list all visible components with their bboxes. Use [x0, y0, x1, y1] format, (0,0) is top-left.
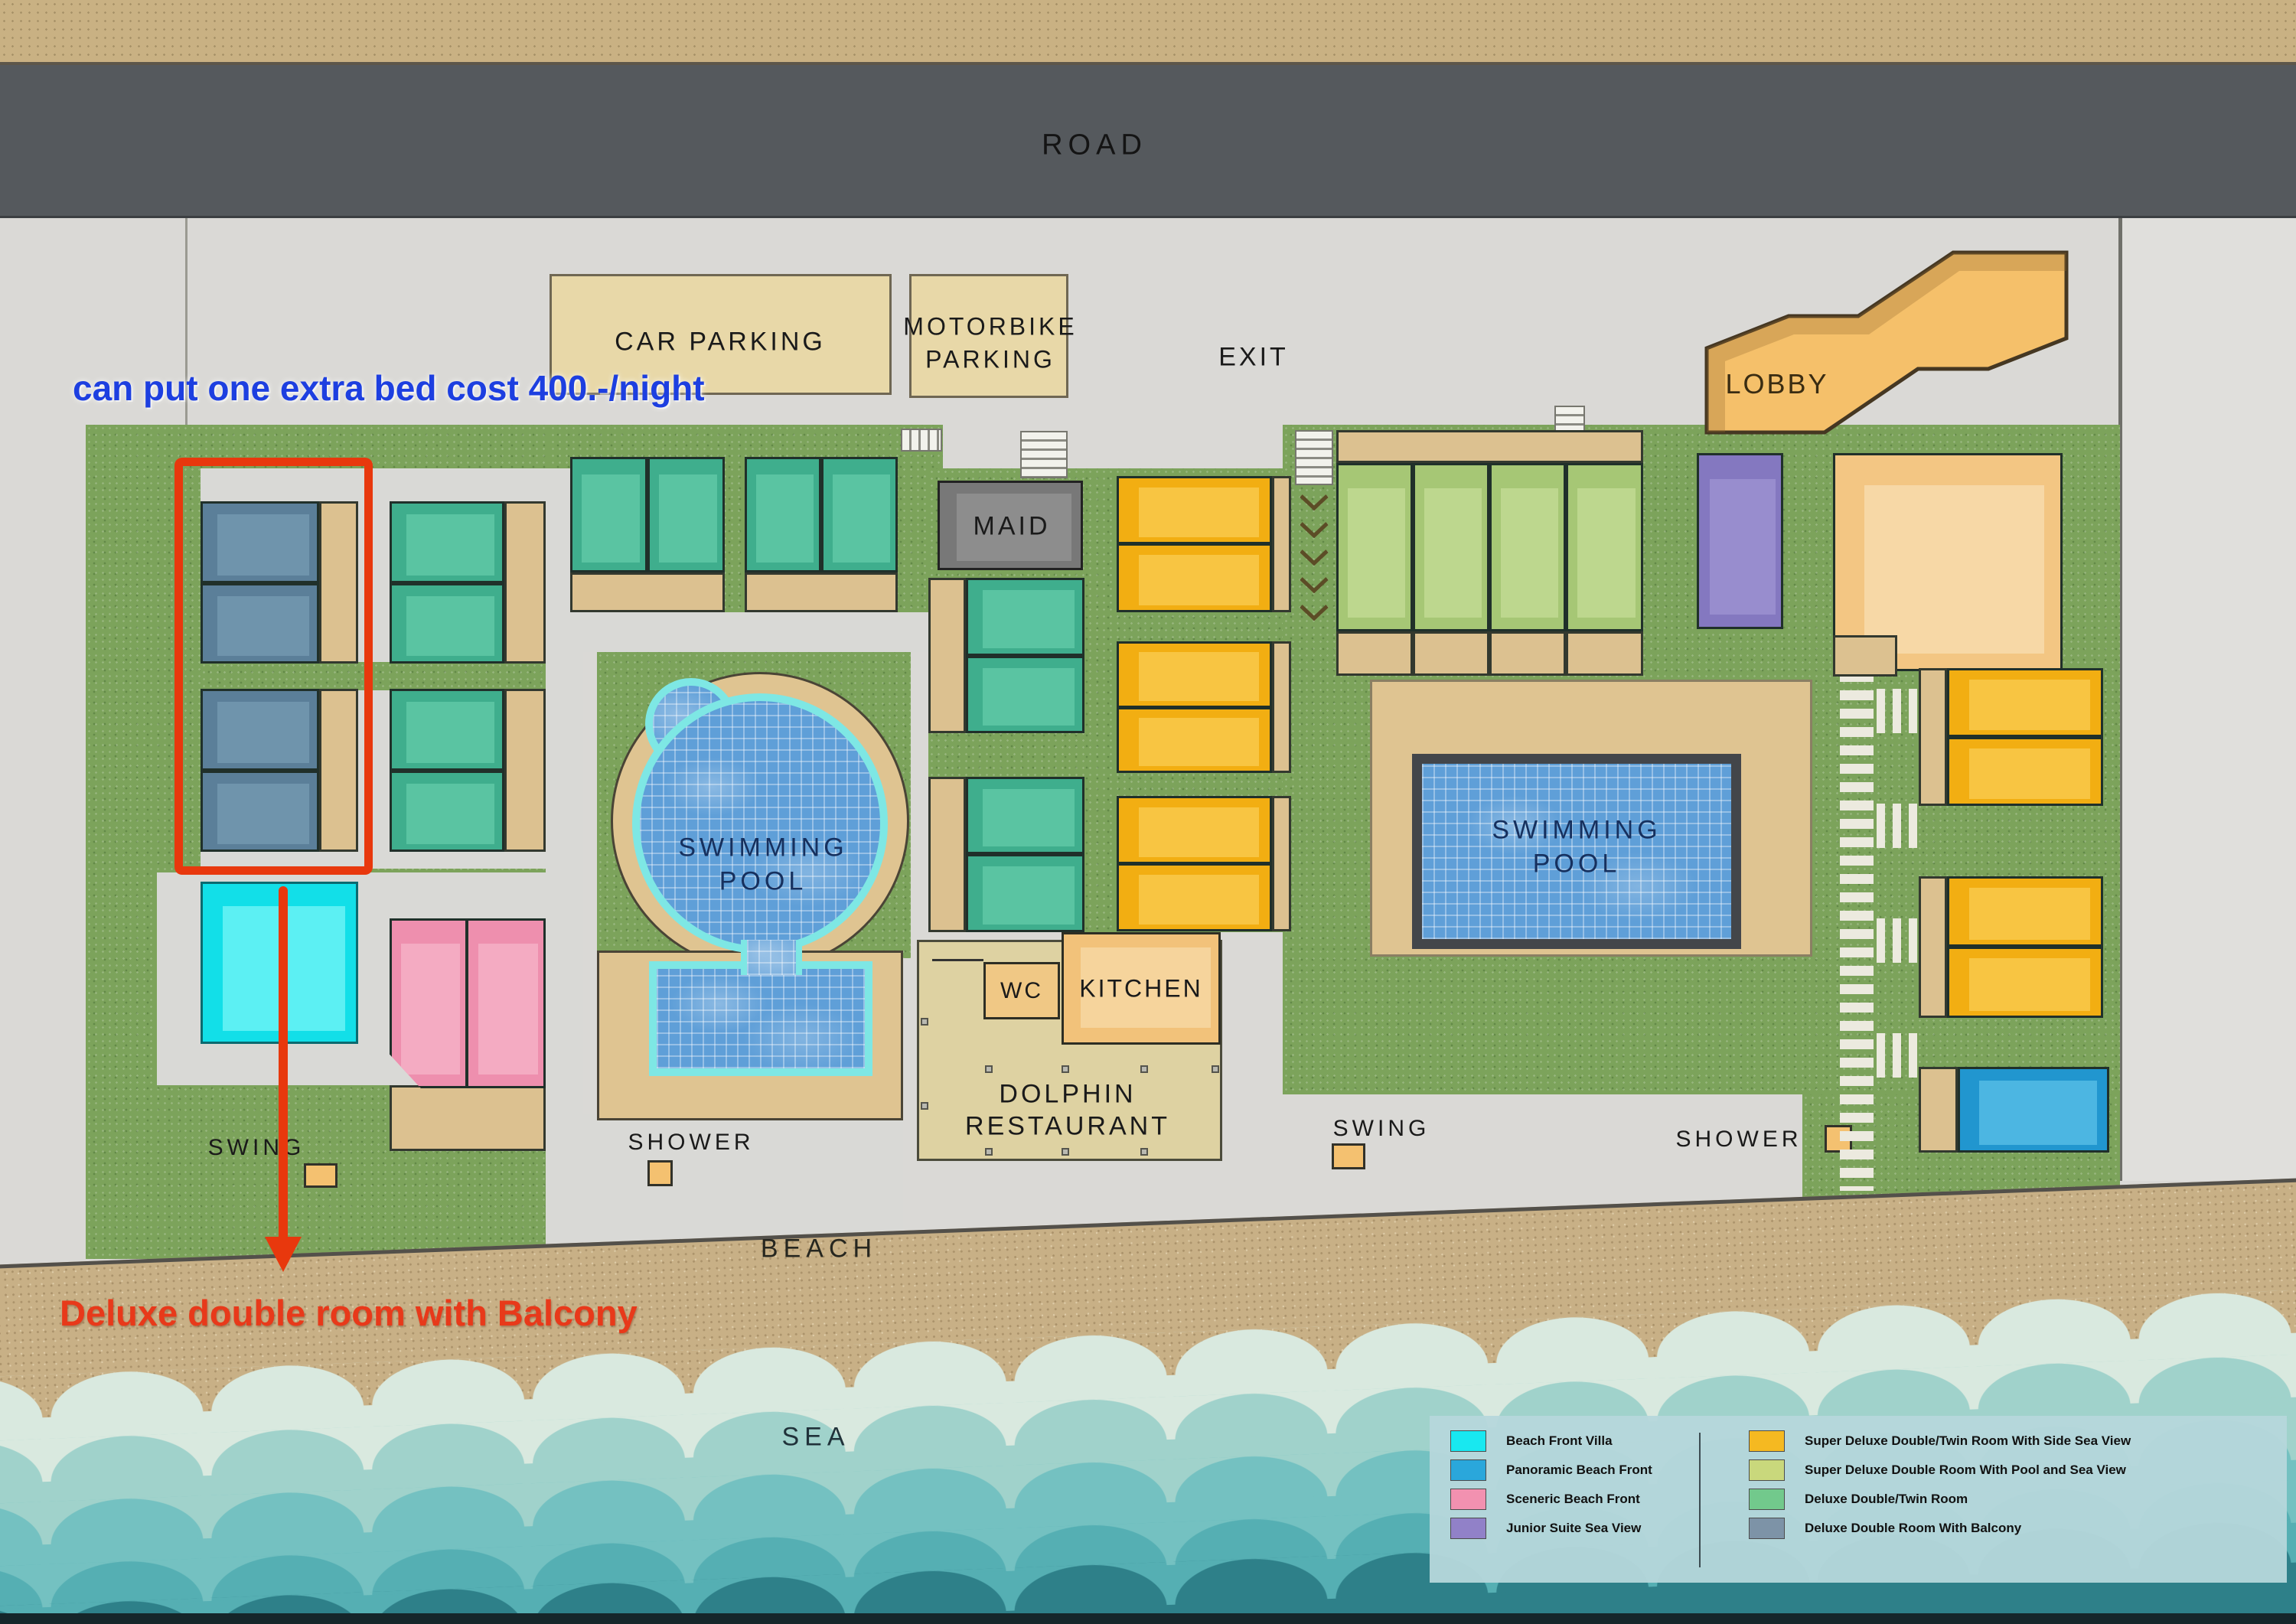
porch-top-center-1 [570, 572, 725, 612]
porch-twin-left-1 [504, 501, 546, 664]
restaurant-label-line1: DOLPHIN [999, 1080, 1136, 1110]
walkway-top-center [550, 612, 938, 652]
porch-right-orange-1 [1919, 668, 1947, 806]
restaurant-post [1140, 1065, 1148, 1073]
room-deluxe-twin [570, 457, 647, 572]
porch-right-building-bottom [1413, 631, 1489, 676]
room-super-deluxe-side-sea [1947, 876, 2103, 947]
shower-left-label: SHOWER [628, 1130, 755, 1156]
legend-label: Deluxe Double/Twin Room [1805, 1492, 1968, 1507]
porch-right-orange-2 [1919, 876, 1947, 1018]
room-super-deluxe-side-sea [1947, 947, 2103, 1018]
room-super-deluxe-side-sea [1117, 543, 1272, 612]
legend-label: Super Deluxe Double Room With Pool and S… [1805, 1463, 2126, 1478]
porch-twin-left-2 [504, 689, 546, 852]
pool-left-label-line2: POOL [719, 867, 807, 897]
road-label: ROAD [1042, 129, 1147, 162]
exit-label: EXIT [1218, 343, 1289, 373]
room-super-deluxe-pool-sea [1489, 463, 1566, 631]
stepping-stone-branch [1877, 689, 1918, 733]
bottom-bar [0, 1613, 2296, 1624]
room-sceneric-beach-front [466, 918, 546, 1088]
room-sceneric-beach-front [390, 918, 468, 1088]
room-junior-suite-sea-view [1697, 453, 1783, 629]
legend-divider [1699, 1433, 1701, 1567]
shower-left-box [647, 1160, 673, 1186]
room-deluxe-twin [390, 771, 504, 852]
room-deluxe-twin [390, 689, 504, 771]
stepping-stone-branch [1877, 1033, 1918, 1078]
stepping-stone-branch [1877, 918, 1918, 963]
steps-right-building [1554, 406, 1585, 432]
restaurant-post [985, 1065, 993, 1073]
road-band [0, 65, 2296, 218]
legend-label: Deluxe Double Room With Balcony [1805, 1521, 2021, 1536]
stepping-stone-path [1840, 635, 1874, 1191]
wc-label: WC [1000, 978, 1043, 1004]
porch-right-building-bottom [1566, 631, 1643, 676]
room-super-deluxe-pool-sea [1566, 463, 1643, 631]
porch-center-orange-2 [1272, 641, 1291, 773]
annotation-arrow-head [265, 1237, 302, 1272]
right-margin [2122, 218, 2296, 1181]
room-deluxe-twin [966, 854, 1084, 932]
pool-left-label-line1: SWIMMING [678, 833, 847, 863]
porch-right-building-bottom [1336, 631, 1413, 676]
porch-right-building-bottom [1489, 631, 1566, 676]
porch-center-orange-1 [1272, 476, 1291, 612]
sceneric-porch [390, 1085, 546, 1151]
room-super-deluxe-side-sea [1117, 796, 1272, 864]
restaurant-post [985, 1148, 993, 1156]
top-sand-strip [0, 0, 2296, 65]
legend-panel: Beach Front Villa Panoramic Beach Front … [1430, 1416, 2287, 1583]
room-deluxe-twin [745, 457, 821, 572]
porch-center-teal-1 [928, 578, 966, 733]
panoramic-beach-front [1958, 1067, 2109, 1153]
room-deluxe-twin [966, 656, 1084, 733]
kitchen-label: KITCHEN [1079, 975, 1202, 1003]
sea-label: SEA [781, 1423, 850, 1453]
legend-label: Sceneric Beach Front [1506, 1492, 1640, 1507]
porch-right-building-top [1336, 430, 1643, 463]
shower-right-label: SHOWER [1676, 1127, 1802, 1153]
restaurant-post [921, 1018, 928, 1026]
pool-left-rect [649, 961, 872, 1076]
swing-left-label: SWING [208, 1135, 305, 1161]
legend-item: Panoramic Beach Front [1450, 1456, 1652, 1485]
chevron-path-icon [1296, 490, 1332, 635]
restaurant-post [1062, 1065, 1069, 1073]
motorbike-parking-label-line1: MOTORBIKE [903, 313, 1077, 341]
pool-right-label-line2: POOL [1533, 850, 1620, 879]
legend-swatch-super-deluxe-side-sea [1749, 1430, 1785, 1452]
restaurant-post [921, 1102, 928, 1110]
path-ladder-top [1295, 430, 1333, 485]
wc-wall-line [932, 959, 983, 961]
legend-item: Beach Front Villa [1450, 1427, 1652, 1456]
room-super-deluxe-pool-sea [1336, 463, 1413, 631]
room-super-deluxe-side-sea [1117, 863, 1272, 931]
legend-swatch-junior-suite [1450, 1518, 1486, 1539]
porch-center-orange-3 [1272, 796, 1291, 931]
swimming-pool-left [632, 693, 888, 954]
motorbike-parking-label-line2: PARKING [925, 346, 1055, 374]
legend-label: Panoramic Beach Front [1506, 1463, 1652, 1478]
annotation-extra-bed: can put one extra bed cost 400.-/night [73, 367, 705, 409]
resort-site-map: ROAD CAR PARKING MOTORBIKE PARKING EXIT … [0, 0, 2296, 1624]
annotation-deluxe-balcony: Deluxe double room with Balcony [60, 1292, 638, 1334]
legend-item: Deluxe Double/Twin Room [1749, 1485, 2131, 1514]
room-super-deluxe-side-sea [1117, 476, 1272, 544]
restaurant-post [1212, 1065, 1219, 1073]
legend-label: Junior Suite Sea View [1506, 1521, 1641, 1536]
legend-item: Junior Suite Sea View [1450, 1514, 1652, 1543]
legend-item: Super Deluxe Double Room With Pool and S… [1749, 1456, 2131, 1485]
room-deluxe-twin [390, 583, 504, 664]
legend-swatch-deluxe-twin [1749, 1489, 1785, 1510]
legend-swatch-sceneric-beach-front [1450, 1489, 1486, 1510]
room-super-deluxe-side-sea [1947, 668, 2103, 737]
legend-swatch-super-deluxe-pool-sea [1749, 1459, 1785, 1481]
legend-label: Super Deluxe Double/Twin Room With Side … [1805, 1433, 2131, 1449]
swing-left-bench [304, 1163, 338, 1188]
lobby-label: LOBBY [1725, 368, 1828, 400]
porch-top-center-2 [745, 572, 898, 612]
pool-right-label-line1: SWIMMING [1492, 816, 1661, 846]
restaurant-label-line2: RESTAURANT [965, 1112, 1170, 1142]
pool-left-channel [741, 940, 802, 975]
porch-panoramic [1919, 1067, 1958, 1153]
legend-item: Sceneric Beach Front [1450, 1485, 1652, 1514]
room-super-deluxe-pool-sea [1413, 463, 1489, 631]
legend-swatch-panoramic-beach-front [1450, 1459, 1486, 1481]
room-deluxe-twin [966, 777, 1084, 854]
legend-swatch-deluxe-balcony [1749, 1518, 1785, 1539]
room-super-deluxe-side-sea [1947, 737, 2103, 806]
maid-label: MAID [974, 512, 1051, 542]
room-deluxe-twin [647, 457, 725, 572]
annotation-arrow-shaft [279, 886, 288, 1243]
room-deluxe-twin [966, 578, 1084, 656]
lobby-building [1691, 245, 2074, 444]
beach-label: BEACH [761, 1234, 877, 1264]
stepping-stone-branch [1877, 804, 1918, 848]
path-top-pad [1833, 635, 1897, 677]
highlight-rect-balcony-rooms [174, 458, 373, 875]
room-deluxe-twin [821, 457, 898, 572]
swing-right-label: SWING [1333, 1116, 1430, 1142]
room-super-deluxe-side-sea [1117, 641, 1272, 708]
restaurant-post [1140, 1148, 1148, 1156]
legend-label: Beach Front Villa [1506, 1433, 1613, 1449]
restaurant-post [1062, 1148, 1069, 1156]
car-parking-label: CAR PARKING [615, 328, 826, 357]
crosswalk-top-center [901, 429, 942, 452]
porch-center-teal-2 [928, 777, 966, 932]
swing-right-bench [1332, 1143, 1365, 1169]
legend-item: Deluxe Double Room With Balcony [1749, 1514, 2131, 1543]
legend-item: Super Deluxe Double/Twin Room With Side … [1749, 1427, 2131, 1456]
room-super-deluxe-side-sea [1117, 707, 1272, 773]
legend-swatch-beach-front-villa [1450, 1430, 1486, 1452]
steps-above-maid [1020, 431, 1068, 478]
room-deluxe-twin [390, 501, 504, 583]
